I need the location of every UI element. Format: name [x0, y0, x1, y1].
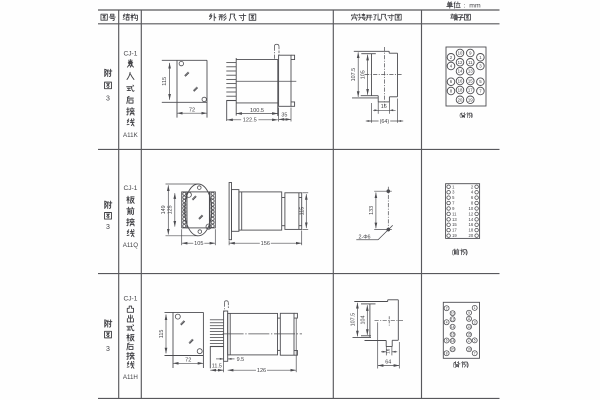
- svg-text:CJ-1: CJ-1: [123, 295, 137, 302]
- svg-text:1: 1: [474, 306, 476, 310]
- svg-text:105: 105: [194, 241, 203, 247]
- svg-text:2: 2: [446, 306, 448, 310]
- svg-text:149: 149: [161, 205, 167, 214]
- svg-text:(: (: [453, 363, 455, 369]
- svg-text:17: 17: [467, 339, 471, 343]
- svg-text:64: 64: [385, 360, 391, 366]
- svg-text:3: 3: [474, 321, 476, 325]
- svg-text:15: 15: [468, 79, 473, 84]
- svg-text:20: 20: [469, 233, 474, 238]
- svg-text:8: 8: [450, 89, 453, 94]
- svg-text:115: 115: [159, 330, 165, 339]
- svg-text:): ): [466, 250, 468, 256]
- svg-text:156: 156: [261, 241, 270, 247]
- svg-text:20: 20: [458, 97, 463, 102]
- svg-text:6: 6: [471, 195, 474, 200]
- svg-text:7: 7: [452, 201, 455, 206]
- svg-text:17: 17: [468, 88, 473, 93]
- svg-text:10: 10: [451, 311, 455, 315]
- svg-text:11: 11: [467, 317, 471, 321]
- svg-text:): ): [471, 113, 473, 119]
- svg-text:6: 6: [446, 339, 448, 343]
- svg-text:3: 3: [106, 96, 110, 103]
- svg-text:16: 16: [385, 348, 390, 354]
- svg-text:6: 6: [450, 79, 453, 84]
- svg-text:17: 17: [452, 228, 457, 233]
- svg-text:A11K: A11K: [123, 132, 139, 139]
- svg-text:5: 5: [452, 195, 455, 200]
- svg-text:133: 133: [369, 206, 375, 215]
- svg-text:18: 18: [451, 339, 455, 343]
- svg-text:2: 2: [450, 55, 453, 60]
- svg-text:126: 126: [257, 368, 266, 374]
- svg-text:72: 72: [185, 358, 191, 364]
- svg-text:35: 35: [281, 112, 287, 118]
- svg-text:16: 16: [381, 104, 387, 110]
- svg-text:72: 72: [189, 108, 195, 114]
- svg-text:8: 8: [471, 201, 474, 206]
- svg-text:14: 14: [469, 217, 474, 222]
- svg-text:7: 7: [479, 89, 482, 94]
- svg-text:13: 13: [467, 325, 471, 329]
- svg-text:15: 15: [467, 333, 471, 337]
- svg-text:11: 11: [468, 60, 473, 65]
- svg-text:16: 16: [451, 333, 455, 337]
- svg-text:115: 115: [162, 77, 168, 86]
- svg-text:1: 1: [479, 55, 482, 60]
- svg-text:10: 10: [469, 206, 474, 211]
- svg-text:9: 9: [452, 206, 455, 211]
- svg-text:10: 10: [458, 51, 463, 56]
- svg-text:): ): [467, 363, 469, 369]
- svg-text:2-Φ6: 2-Φ6: [358, 234, 370, 240]
- svg-text:CJ-1: CJ-1: [123, 50, 137, 57]
- svg-text:19: 19: [467, 347, 471, 351]
- svg-text:8: 8: [446, 351, 448, 355]
- svg-text:9.5: 9.5: [237, 357, 245, 363]
- svg-text:15: 15: [452, 222, 457, 227]
- svg-text:16: 16: [458, 79, 463, 84]
- svg-text:5: 5: [474, 339, 476, 343]
- svg-text:12: 12: [451, 318, 455, 322]
- svg-text:A11Q: A11Q: [123, 242, 139, 249]
- svg-text:125: 125: [168, 205, 174, 214]
- svg-text:122.5: 122.5: [243, 118, 257, 124]
- svg-text:(64): (64): [380, 119, 390, 125]
- svg-text:4: 4: [450, 64, 453, 69]
- svg-text:5: 5: [479, 79, 482, 84]
- svg-text:19: 19: [452, 233, 457, 238]
- svg-text:100.5: 100.5: [250, 108, 264, 114]
- svg-text:12: 12: [458, 60, 463, 65]
- svg-text:3: 3: [106, 224, 110, 231]
- svg-text:3: 3: [106, 346, 110, 353]
- svg-text:9: 9: [468, 311, 470, 315]
- svg-text:(: (: [459, 113, 461, 119]
- svg-text:104: 104: [360, 316, 366, 325]
- svg-text::: :: [463, 2, 465, 9]
- svg-text:16: 16: [469, 222, 474, 227]
- svg-text:20: 20: [451, 347, 455, 351]
- svg-text:mm: mm: [469, 2, 481, 9]
- svg-text:18: 18: [458, 88, 463, 93]
- svg-text:3: 3: [452, 190, 455, 195]
- svg-text:A11H: A11H: [123, 374, 138, 381]
- svg-text:12: 12: [469, 211, 474, 216]
- svg-text:19: 19: [468, 97, 473, 102]
- svg-text:107.5: 107.5: [350, 313, 356, 327]
- svg-text:13: 13: [468, 69, 473, 74]
- svg-text:13: 13: [452, 217, 457, 222]
- svg-text:CJ-1: CJ-1: [123, 185, 137, 192]
- svg-text:105: 105: [361, 70, 367, 79]
- svg-text:107.5: 107.5: [351, 68, 357, 82]
- svg-text:(: (: [452, 250, 454, 256]
- svg-text:4: 4: [446, 321, 448, 325]
- svg-text:1: 1: [452, 184, 455, 189]
- svg-text:18: 18: [469, 228, 474, 233]
- svg-text:11: 11: [452, 211, 457, 216]
- svg-text:14: 14: [458, 69, 463, 74]
- svg-text:11.5: 11.5: [212, 364, 222, 370]
- svg-text:14: 14: [451, 325, 455, 329]
- svg-text:9: 9: [469, 51, 472, 56]
- svg-text:2: 2: [471, 184, 474, 189]
- svg-text:115: 115: [299, 207, 305, 216]
- svg-text:7: 7: [474, 351, 476, 355]
- svg-text:4: 4: [471, 190, 474, 195]
- svg-text:3: 3: [479, 64, 482, 69]
